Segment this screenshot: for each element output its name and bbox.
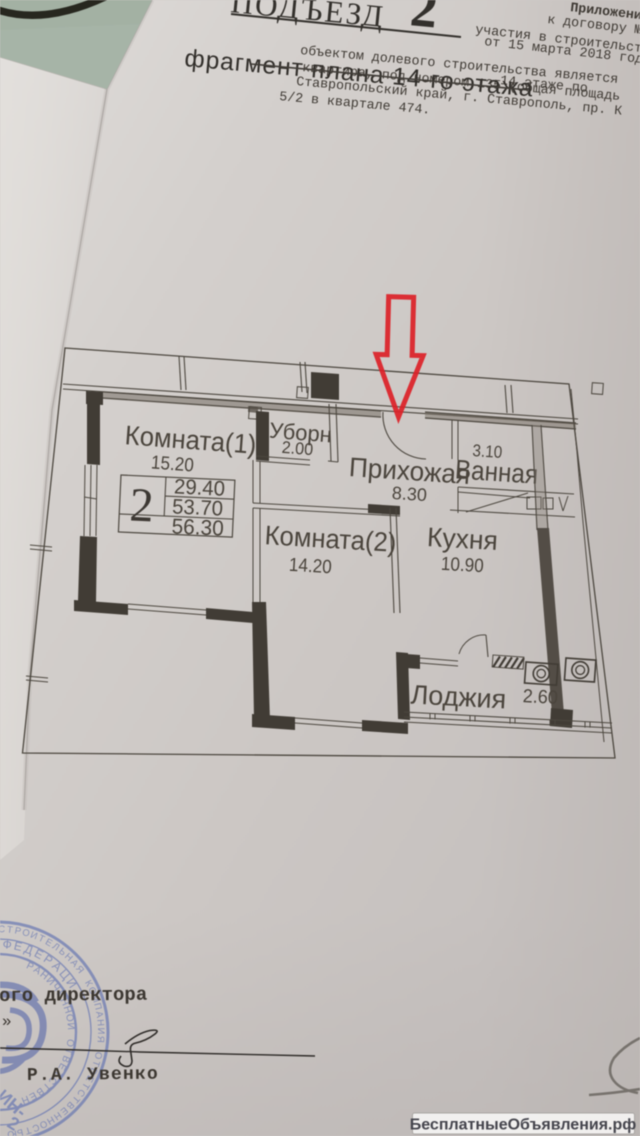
svg-text:»: » <box>2 1013 12 1031</box>
svg-text:Й: Й <box>64 1022 78 1030</box>
svg-text:Кухня: Кухня <box>426 522 498 556</box>
svg-text:14.20: 14.20 <box>288 554 332 578</box>
svg-text:БесплатныеОбъявления.рф: БесплатныеОбъявления.рф <box>410 1117 637 1134</box>
svg-text:Н: Н <box>94 1019 106 1027</box>
svg-text:56.30: 56.30 <box>171 515 224 541</box>
svg-text:15.20: 15.20 <box>150 452 194 476</box>
svg-text:10.90: 10.90 <box>440 553 484 576</box>
svg-text:С: С <box>0 924 5 935</box>
svg-text:Я: Я <box>95 1035 106 1043</box>
svg-text:ого директора: ого директора <box>0 984 147 1007</box>
svg-text:Лоджия: Лоджия <box>410 680 507 715</box>
svg-text:8.30: 8.30 <box>391 483 427 505</box>
svg-text:Р.А. Увенко: Р.А. Увенко <box>27 1065 159 1086</box>
svg-text:2: 2 <box>128 478 154 532</box>
svg-text:И: И <box>95 1027 106 1034</box>
svg-text:2.00: 2.00 <box>281 437 314 459</box>
svg-text:Ф: Ф <box>2 937 13 952</box>
svg-text:2.60: 2.60 <box>522 685 558 708</box>
svg-text:3.10: 3.10 <box>472 441 503 462</box>
